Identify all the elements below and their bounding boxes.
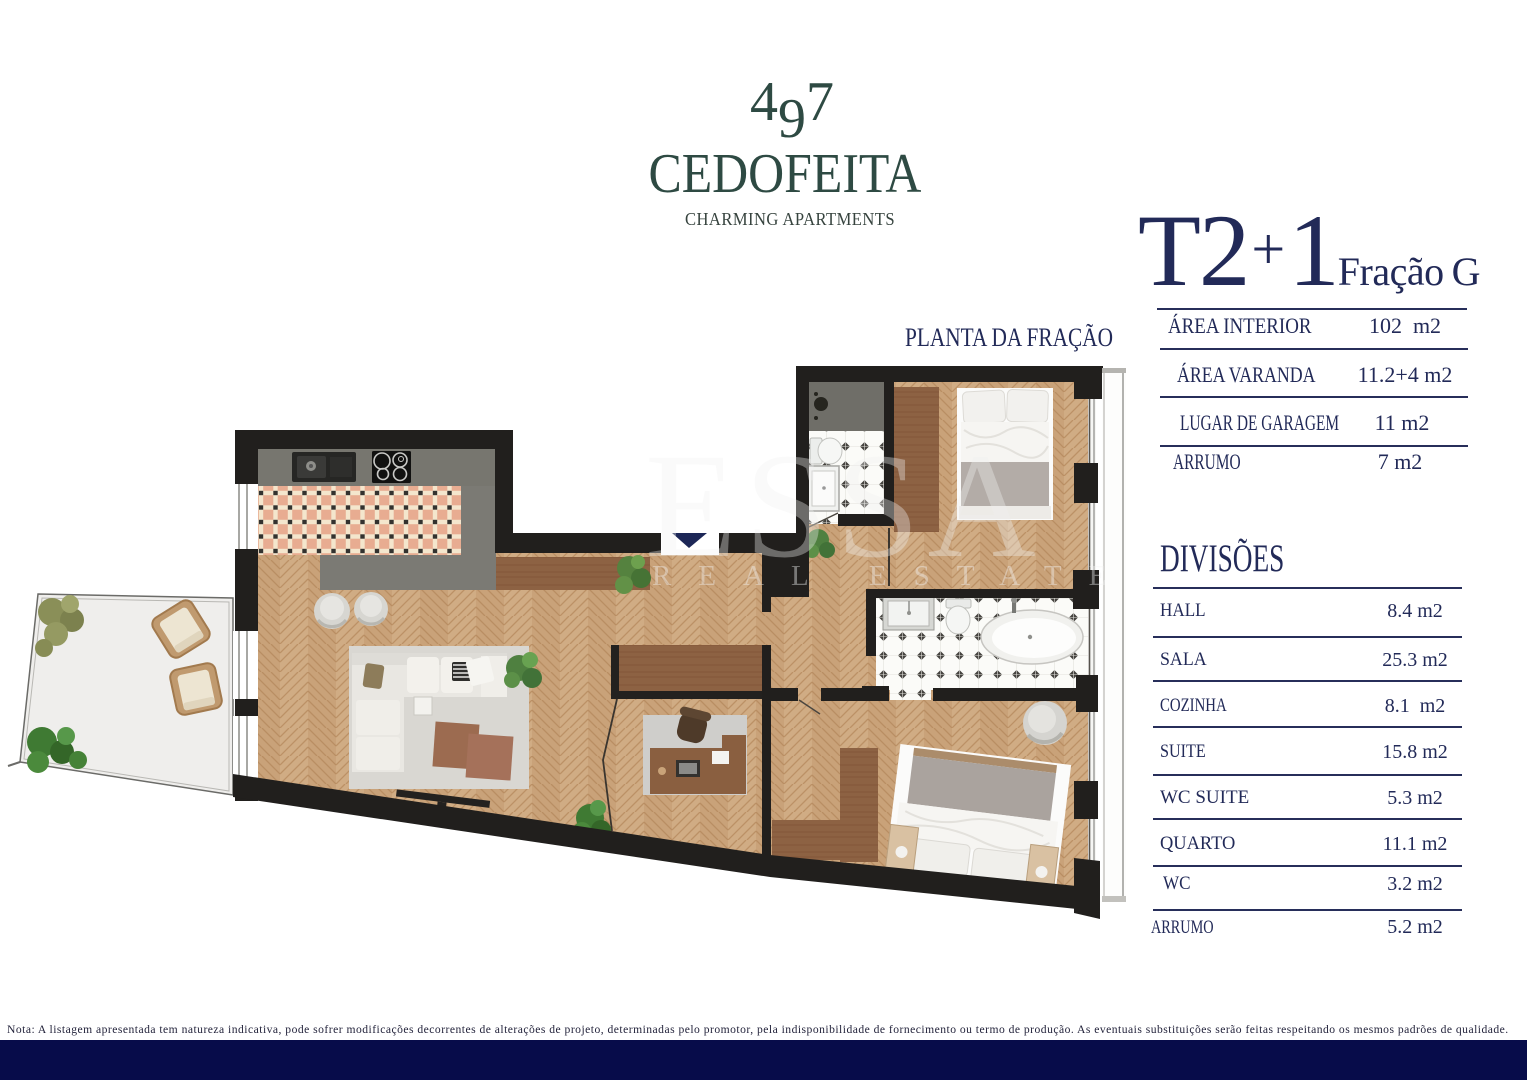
svg-text:REAL ESTATE: REAL ESTATE [652, 560, 1133, 592]
